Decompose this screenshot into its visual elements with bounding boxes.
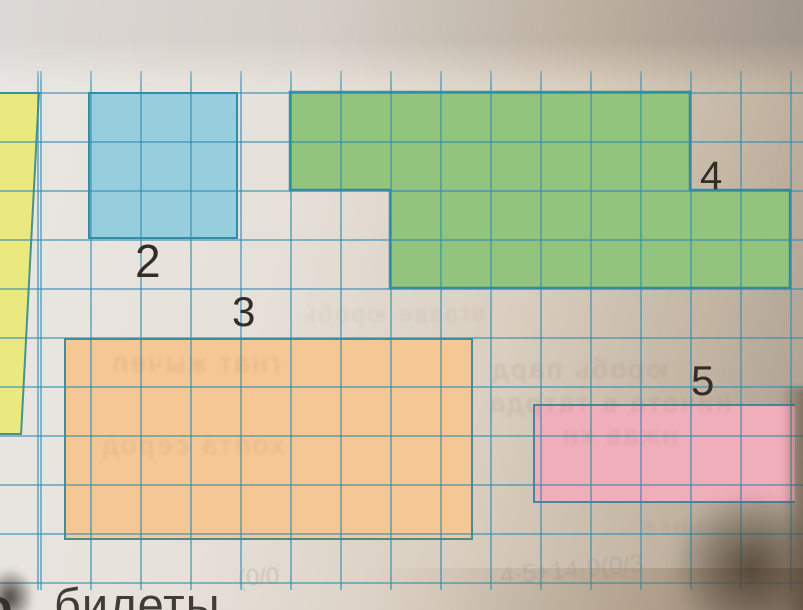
figure-5-label: 5	[691, 360, 714, 402]
figure-3-label: 3	[232, 291, 255, 333]
figure-4-label: 4	[700, 156, 722, 196]
photo-bottom-right-shadow	[671, 492, 803, 610]
textbook-photo: вгазве юробь гнат жычеп хопта серод юроб…	[0, 0, 803, 610]
photo-bottom-left-shadow	[0, 568, 34, 610]
figure-2-label: 2	[135, 238, 161, 284]
photo-top-blur-band	[0, 0, 803, 86]
